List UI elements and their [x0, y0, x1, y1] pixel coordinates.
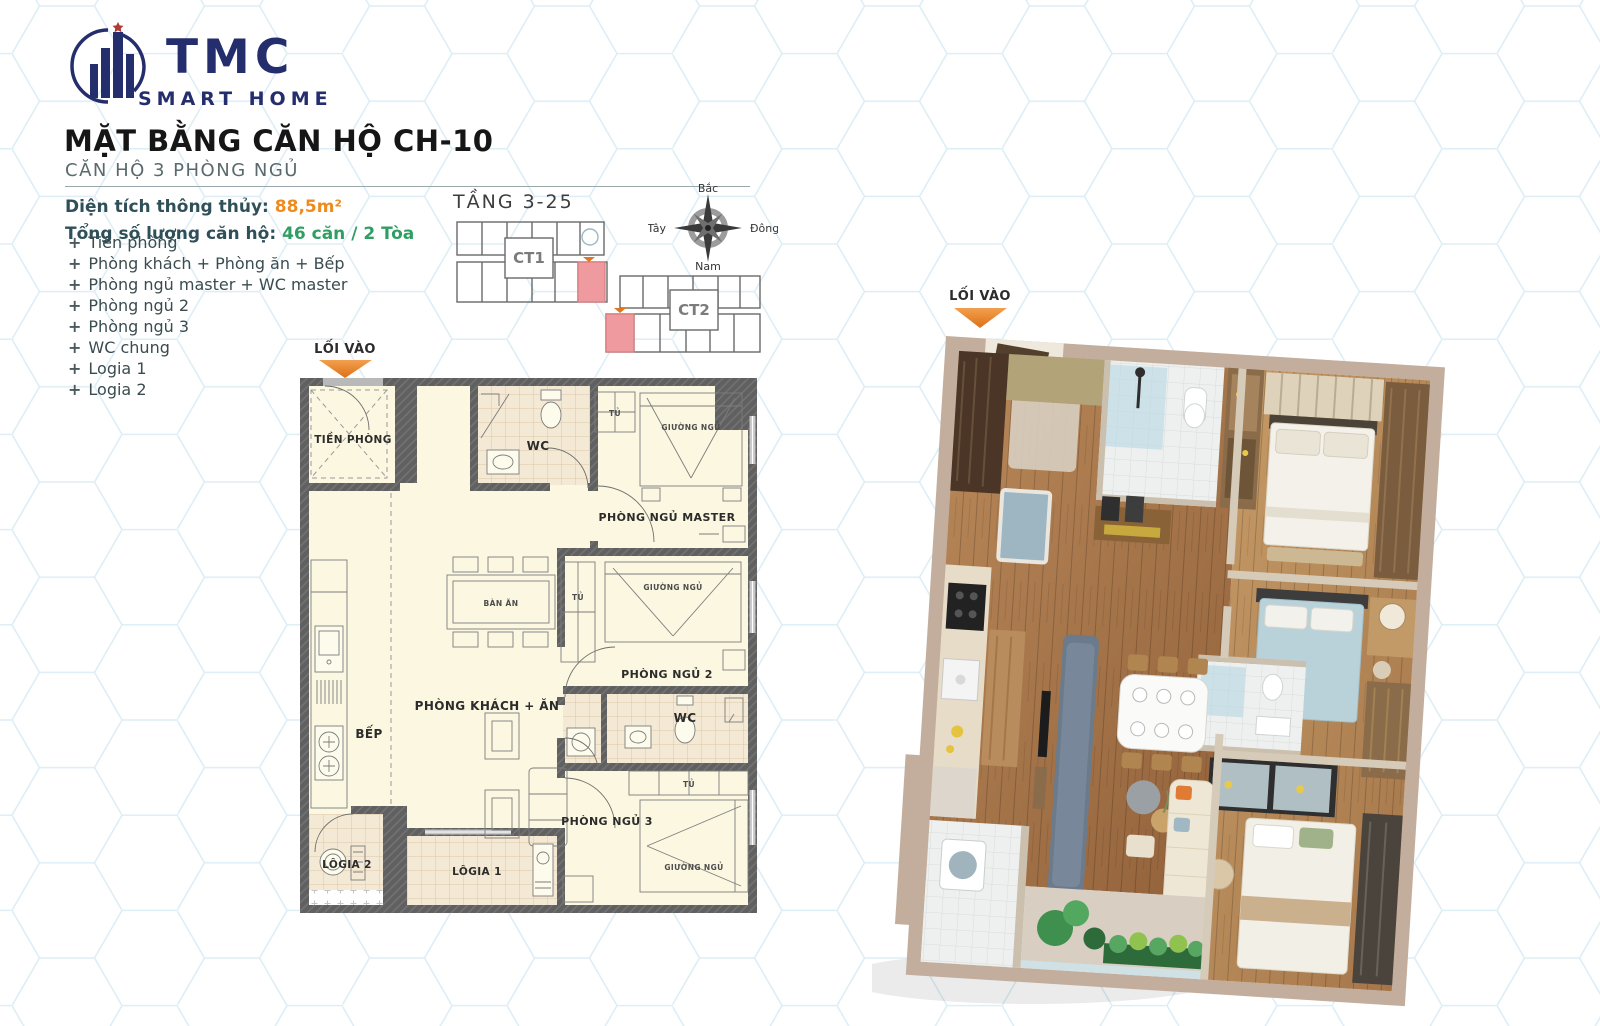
- ct1-label: CT1: [513, 249, 545, 267]
- compass-north: Bắc: [698, 182, 718, 195]
- entry-label-3d: LỐI VÀO: [949, 286, 1011, 304]
- label-tu-pn3: TỦ: [683, 779, 695, 789]
- compass-east: Đông: [750, 222, 778, 235]
- label-phong-ngu-3: PHÒNG NGỦ 3: [561, 814, 653, 828]
- label-ban-an: BÀN ĂN: [484, 599, 519, 608]
- list-item: +Phòng ngủ 2: [68, 295, 347, 316]
- list-item: +Phòng ngủ 3: [68, 316, 347, 337]
- entry-arrow-3d: [954, 308, 1007, 328]
- label-phong-khach: PHÒNG KHÁCH + ĂN: [415, 698, 560, 713]
- logia2-floor: [308, 814, 384, 890]
- compass-rose: Bắc Nam Tây Đông: [648, 182, 778, 274]
- spec-area-label: Diện tích thông thủy:: [65, 197, 275, 217]
- spec-area: Diện tích thông thủy: 88,5m²: [65, 194, 414, 221]
- compass-south: Nam: [695, 260, 721, 273]
- list-item: +Phòng ngủ master + WC master: [68, 274, 347, 295]
- wc-3d: [1192, 654, 1306, 757]
- apartment-3d: [892, 335, 1445, 1006]
- label-phong-ngu-master: PHÒNG NGỦ MASTER: [599, 510, 736, 524]
- unit-arrow-ct1: [583, 257, 595, 262]
- floorplan-3d: LỐI VÀO: [872, 278, 1562, 1026]
- list-item: +Tiền phòng: [68, 232, 347, 253]
- label-logia-1: LÔGIA 1: [452, 865, 502, 878]
- ac-ledge: [308, 890, 384, 906]
- label-wc-master: WC: [527, 439, 550, 453]
- entry-arrow-2d: [319, 360, 372, 378]
- label-tien-phong: TIỀN PHÒNG: [314, 432, 392, 446]
- keyplan-ct1: CT1: [452, 210, 617, 310]
- label-giuong-pn3: GIƯỜNG NGỦ: [664, 862, 723, 872]
- label-wc-chung: WC: [674, 711, 697, 725]
- label-giuong-pn2: GIƯỜNG NGỦ: [643, 582, 702, 592]
- page-subtitle: CĂN HỘ 3 PHÒNG NGỦ: [65, 160, 299, 181]
- page-title: MẶT BẰNG CĂN HỘ CH-10: [64, 124, 493, 158]
- brand-logo: TMC SMART HOME: [60, 20, 333, 110]
- label-giuong-master: GIƯỜNG NGỦ: [661, 422, 720, 432]
- utility-3d: [921, 820, 1030, 968]
- logo-title: TMC: [166, 34, 333, 82]
- loggia-3d: [1020, 886, 1211, 980]
- label-logia-2: LÔGIA 2: [322, 858, 372, 871]
- master-bedroom-3d: [1254, 372, 1430, 580]
- list-item: +Phòng khách + Phòng ăn + Bếp: [68, 253, 347, 274]
- ct2-label: CT2: [678, 301, 710, 319]
- label-tu-master: TỦ: [609, 408, 621, 418]
- floorplan-2d: LỐI VÀO: [295, 338, 770, 928]
- entry-label-2d: LỐI VÀO: [314, 339, 376, 357]
- spec-area-value: 88,5m²: [275, 197, 342, 217]
- label-tu-pn2: TỦ: [572, 592, 584, 602]
- logo-subtitle: SMART HOME: [138, 88, 333, 110]
- label-phong-ngu-2: PHÒNG NGỦ 2: [621, 667, 713, 681]
- wall-art: [998, 490, 1050, 563]
- compass-west: Tây: [648, 222, 666, 235]
- label-bep: BẾP: [355, 725, 382, 741]
- unit-arrow-ct2: [614, 308, 626, 313]
